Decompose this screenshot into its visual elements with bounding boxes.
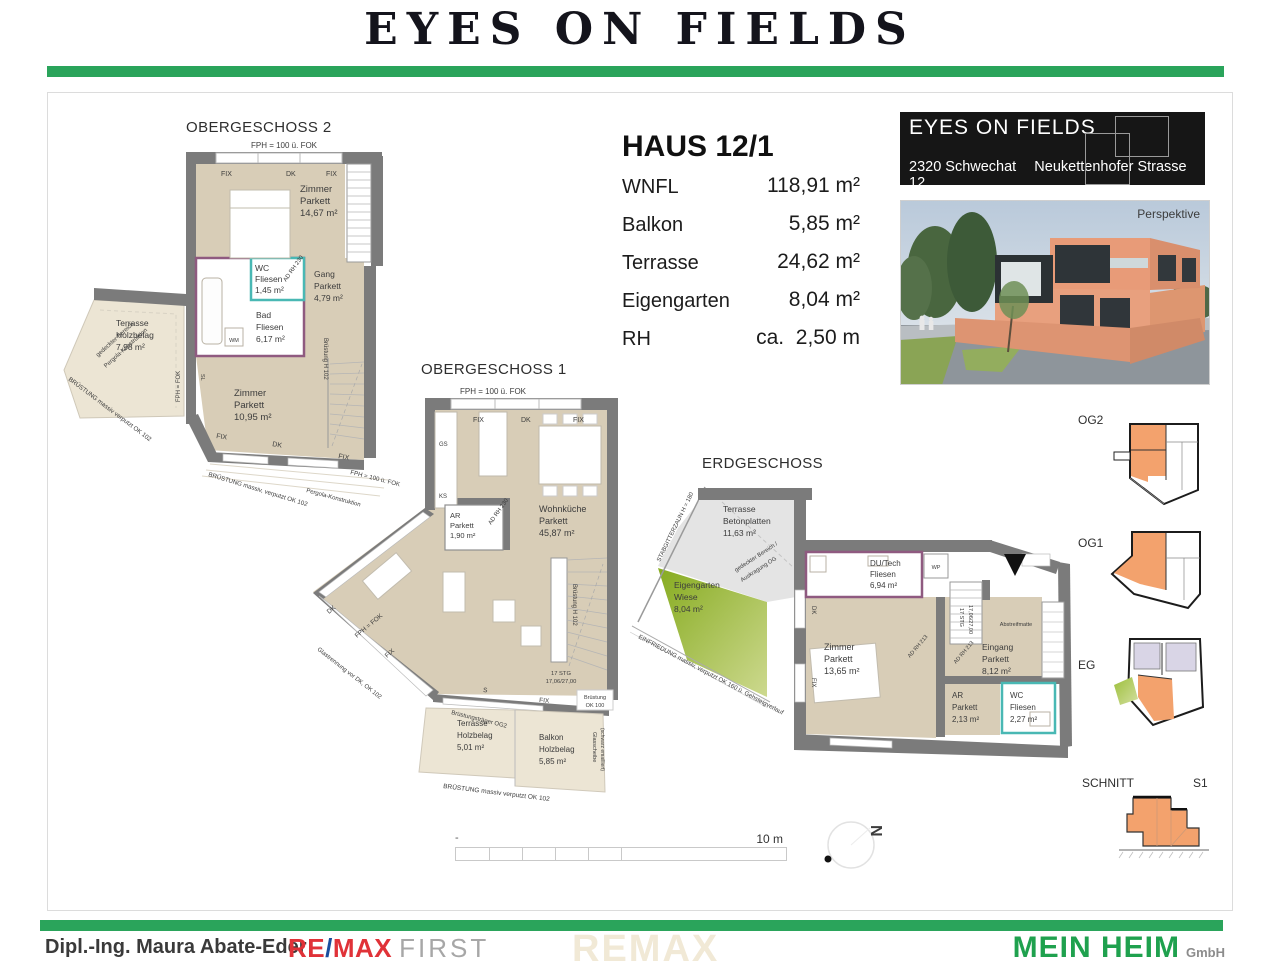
unit-row-label: WNFL [622, 176, 679, 199]
project-name: EYES ON FIELDS [909, 116, 1096, 140]
annotation: DK [286, 171, 296, 178]
room-label: Fliesen [256, 322, 284, 332]
room-label: 2,13 m² [952, 715, 979, 724]
room-label: Betonplatten [723, 516, 771, 526]
eg-closet [1042, 602, 1064, 678]
remax-first: FIRST [399, 933, 489, 963]
room-label: AR [952, 691, 963, 700]
annotation: FPH = 100 ü. FOK [460, 387, 527, 396]
room-label: Zimmer [300, 184, 332, 195]
room-label: Parkett [234, 400, 264, 411]
room-label: 14,67 m² [300, 208, 338, 219]
room-label: Bad [256, 310, 271, 320]
plan-title-eg: ERDGESCHOSS [702, 455, 823, 472]
annotation: 17,06/27,00 [967, 605, 973, 634]
north-arrow: N [815, 815, 891, 877]
room-label: 4,79 m² [314, 293, 343, 303]
annotation: Glasscheibe [591, 732, 597, 762]
room-label: 10,95 m² [234, 412, 272, 423]
mini-room [1166, 643, 1196, 671]
room-label: 6,17 m² [256, 334, 285, 344]
unit-info: HAUS 12/1 WNFL 118,91 m² Balkon 5,85 m² … [622, 130, 862, 360]
overview-label-eg: EG [1078, 658, 1095, 672]
room-label: Parkett [982, 654, 1010, 664]
annotation: FPH = FOK [176, 371, 182, 402]
room-label: Eingang [982, 642, 1013, 652]
remax-logo: RE/MAXFIRST [288, 933, 489, 964]
unit-row-value: 24,62 m² [777, 250, 860, 274]
section-profile [1127, 798, 1199, 846]
room-label: Fliesen [870, 570, 896, 579]
annotation: OK 100 [586, 703, 605, 709]
remax-slash: / [325, 933, 333, 963]
scale-zero: - [455, 832, 459, 844]
room-label: WC [1010, 691, 1024, 700]
room-label: Zimmer [234, 388, 266, 399]
deco-rect [1085, 133, 1130, 185]
brand-name: MEIN HEIM [1013, 931, 1180, 964]
perspective-image: Perspektive [900, 200, 1210, 385]
schnitt-drawing [1113, 788, 1213, 863]
scale-max-label: 10 m [756, 832, 783, 846]
footer-watermark: REMAX [572, 928, 719, 971]
annotation: 17,06/27,00 [546, 679, 577, 685]
brand-logo: MEIN HEIMGmbH [1005, 931, 1225, 965]
mini-room [1134, 643, 1160, 669]
annotation: Glastrennung vor DK, OK 102 [316, 647, 383, 701]
project-box: EYES ON FIELDS 2320 Schwechat Neukettenh… [900, 112, 1205, 185]
plan-title-og2: OBERGESCHOSS 2 [186, 119, 332, 136]
room-label: AR [450, 511, 461, 520]
north-letter: N [867, 825, 884, 837]
annotation: WM [229, 338, 239, 344]
header-divider [47, 66, 1224, 77]
perspective-label: Perspektive [1137, 207, 1200, 221]
room-label: DU/Tech [870, 559, 901, 568]
room-label: Gang [314, 269, 335, 279]
annotation: DK [521, 417, 531, 424]
annotation: 17 STG [551, 671, 571, 677]
agent-name: Dipl.-Ing. Maura Abate-Eder [45, 936, 307, 959]
coffee-table [493, 600, 515, 622]
coffee-table [521, 626, 541, 646]
annotation: FIX [573, 417, 584, 424]
room-label: Parkett [539, 516, 568, 526]
unit-row-value: ca. 2,50 m [756, 326, 860, 350]
room-label: 5,01 m² [457, 743, 484, 752]
unit-row-label: Eigengarten [622, 290, 730, 313]
remax-max: MAX [333, 933, 392, 963]
og2-furniture [230, 190, 290, 258]
room-label: 6,94 m² [870, 581, 897, 590]
room-label: Terrasse [723, 504, 756, 514]
room-label: Eigengarten [674, 580, 720, 590]
room-label: Wiese [674, 592, 698, 602]
unit-row-label: Balkon [622, 214, 683, 237]
floorplan-sheet: EYES ON FIELDS OBERGESCHOSS 2 OBERGESCHO… [0, 0, 1280, 975]
annotation: FIX [810, 678, 816, 687]
young-tree-crown [999, 281, 1029, 319]
scale-bar: - 10 m [455, 832, 787, 860]
room-label: 2,27 m² [1010, 715, 1037, 724]
room-label: 1,90 m² [450, 531, 476, 540]
room-label: Wohnküche [539, 504, 586, 514]
bathtub [202, 278, 222, 344]
room-label: 45,87 m² [539, 528, 575, 538]
annotation: Brüstung H 102 [571, 584, 577, 626]
room-label: Zimmer [824, 642, 855, 652]
room-label: Terrasse [457, 719, 488, 728]
room-label: Holzbelag [457, 731, 493, 740]
unit-row-label: RH [622, 328, 651, 351]
unit-row-value: 5,85 m² [789, 212, 860, 236]
mini-terrace-tab [1114, 452, 1130, 460]
annotation: FIX [221, 171, 232, 178]
unit-title: HAUS 12/1 [622, 130, 862, 164]
room-label: Holzbelag [539, 745, 575, 754]
room-label: Parkett [952, 703, 978, 712]
room-label: Fliesen [1010, 703, 1036, 712]
annotation: Brüstung [584, 695, 606, 701]
sofa [443, 572, 465, 612]
room-label: Parkett [450, 521, 475, 530]
plan-og1: FPH = 100 ü. FOK FIX DK FIX GS KS AR Par… [293, 360, 638, 815]
brand-suffix: GmbH [1186, 945, 1225, 960]
annotation: DK [810, 606, 816, 614]
plan-title-og1: OBERGESCHOSS 1 [421, 361, 567, 378]
annotation: FIX [473, 417, 484, 424]
room-label: WC [255, 263, 269, 273]
annotation: SL [199, 374, 205, 381]
overview-plan-eg [1108, 635, 1213, 730]
plan-eg: Terrasse Betonplatten 11,63 m² STABGITTE… [630, 450, 1075, 780]
annotation: FIX [539, 697, 550, 705]
annotation: KS [439, 494, 447, 500]
unit-highlight [1131, 425, 1166, 482]
project-city: 2320 Schwechat [909, 159, 1016, 175]
entry-door [1022, 554, 1050, 566]
unit-row-value: 118,91 m² [767, 174, 860, 198]
room-label: Balkon [539, 733, 563, 742]
unit-row-label: Terrasse [622, 252, 699, 275]
bed [230, 190, 290, 258]
project-address: 2320 Schwechat Neukettenhofer Strasse 12 [909, 159, 1205, 191]
scale-bar-track [455, 847, 787, 861]
room-label: Fliesen [255, 274, 283, 284]
room-label: Parkett [314, 281, 342, 291]
room-label: 8,04 m² [674, 604, 703, 614]
remax-re: RE [288, 933, 325, 963]
annotation: WP [932, 565, 941, 571]
room-label: Parkett [824, 654, 853, 664]
page-title: EYES ON FIELDS [0, 4, 1280, 55]
room-label: 5,85 m² [539, 757, 566, 766]
annotation: (schwarz emailliert) [599, 728, 605, 771]
room-label: 1,45 m² [255, 285, 284, 295]
annotation: Abstreifmatte [1000, 622, 1032, 628]
annotation: GS [439, 442, 448, 448]
room-label: 8,12 m² [982, 666, 1011, 676]
overview-plan-og1 [1100, 528, 1215, 620]
eg-stairs [950, 582, 982, 644]
room-label: 11,63 m² [723, 528, 756, 538]
room-label: 13,65 m² [824, 666, 860, 676]
annotation: FIX [326, 171, 337, 178]
north-dot [825, 856, 832, 863]
annotation: FPH = 100 ü. FOK [251, 141, 318, 150]
unit-row-value: 8,04 m² [789, 288, 860, 312]
room-label: Parkett [300, 196, 330, 207]
overview-plan-og2 [1100, 420, 1215, 508]
dining-table [539, 426, 601, 484]
annotation: 17 STG [958, 608, 964, 627]
